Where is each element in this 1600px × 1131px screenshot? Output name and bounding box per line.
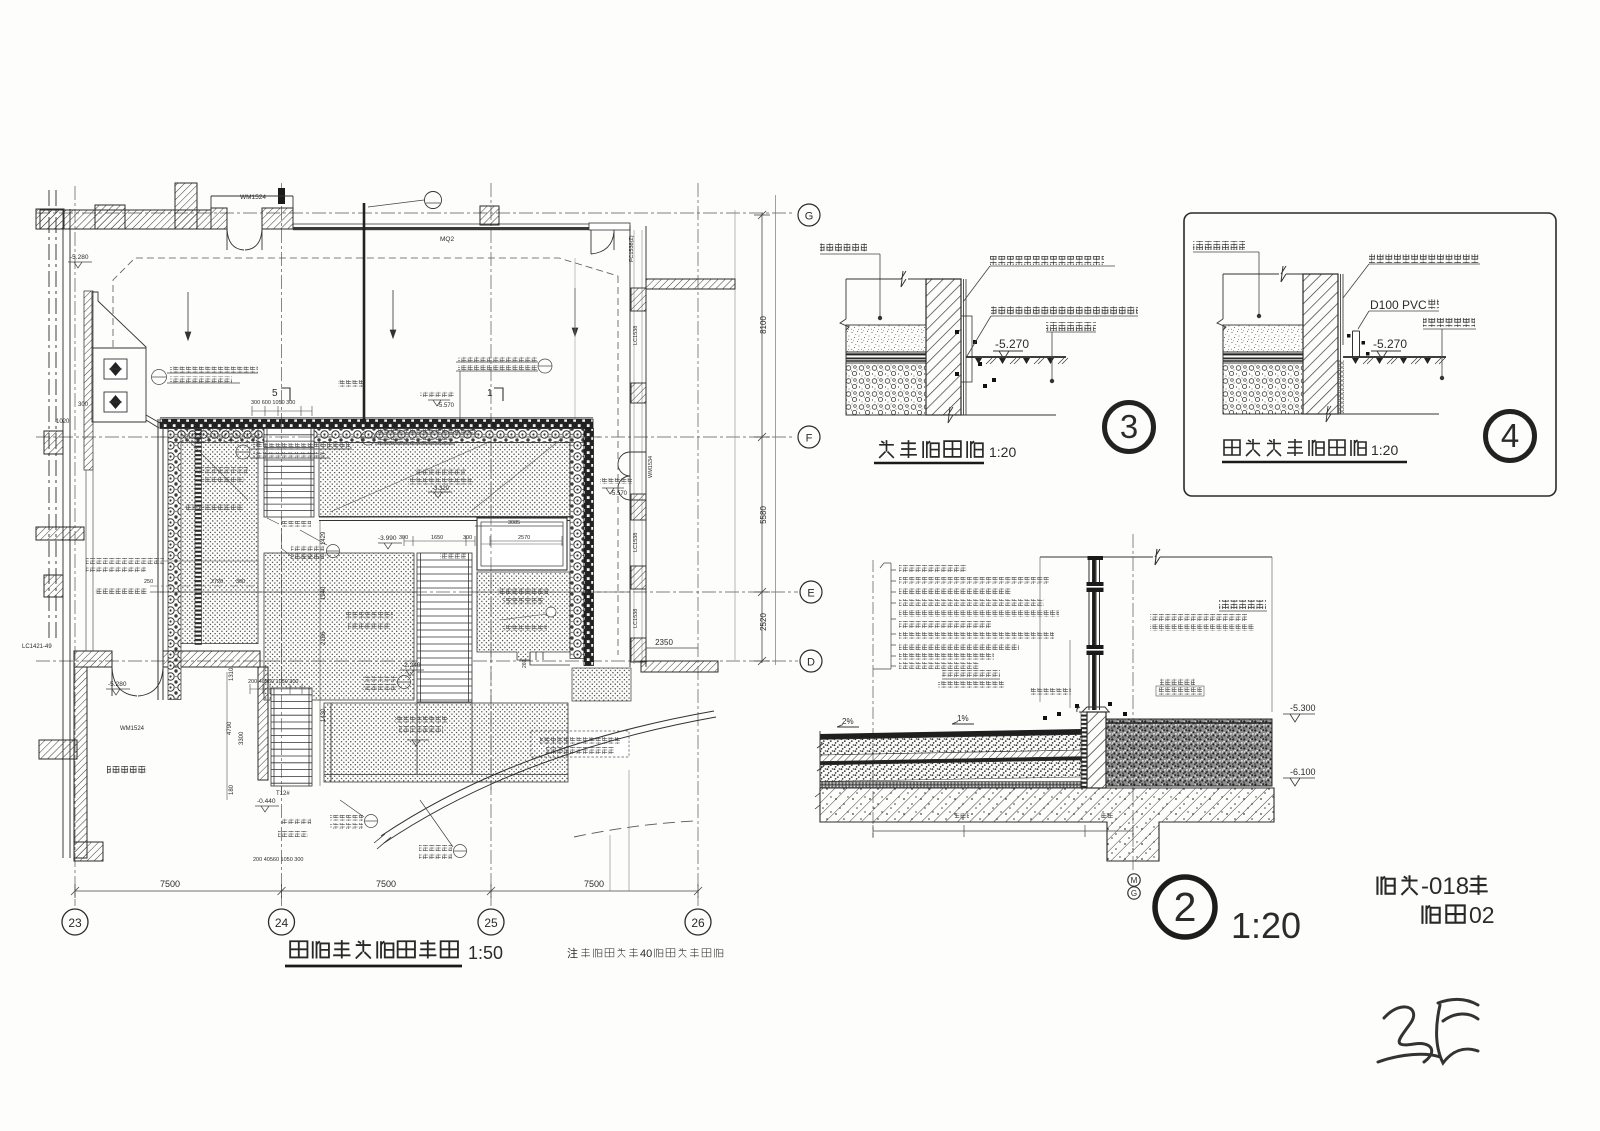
svg-text:1:50: 1:50: [468, 943, 503, 963]
svg-text:D: D: [807, 657, 815, 669]
svg-text:LC1538: LC1538: [633, 533, 639, 552]
svg-text:4: 4: [1501, 417, 1519, 454]
svg-text:WM1524: WM1524: [120, 726, 145, 732]
svg-text:2570: 2570: [518, 535, 530, 541]
svg-text:3: 3: [1120, 408, 1138, 445]
svg-text:-5.570: -5.570: [437, 403, 455, 409]
svg-text:FC1538(Z): FC1538(Z): [629, 235, 635, 262]
svg-text:7500: 7500: [584, 879, 604, 889]
svg-text:-5.570: -5.570: [610, 491, 628, 497]
svg-text:1%: 1%: [957, 714, 969, 723]
svg-text:M: M: [1131, 876, 1138, 885]
svg-text:-5.280: -5.280: [70, 254, 89, 261]
svg-text:LC1421-49: LC1421-49: [22, 644, 52, 650]
svg-text:1:20: 1:20: [989, 444, 1016, 460]
svg-text:5580: 5580: [759, 506, 768, 524]
svg-text:2720: 2720: [211, 579, 223, 585]
svg-text:300: 300: [463, 535, 472, 541]
svg-text:1940: 1940: [321, 586, 327, 600]
svg-text:1: 1: [487, 388, 493, 399]
svg-text:-5.270: -5.270: [1373, 337, 1407, 351]
svg-text:7500: 7500: [160, 879, 180, 889]
svg-text:T12#: T12#: [276, 791, 290, 797]
svg-text:7500: 7500: [376, 879, 396, 889]
svg-text:250: 250: [144, 579, 153, 585]
svg-text:1430: 1430: [321, 708, 327, 722]
svg-text:23: 23: [68, 916, 82, 930]
svg-text:WM1534: WM1534: [648, 456, 654, 478]
svg-text:8100: 8100: [759, 316, 768, 334]
svg-text:300: 300: [399, 535, 408, 541]
svg-text:E: E: [807, 588, 814, 600]
svg-text:1:20: 1:20: [1371, 442, 1398, 458]
svg-text:-0.440: -0.440: [257, 798, 276, 805]
svg-text:3085: 3085: [508, 520, 520, 526]
svg-text:-5.280: -5.280: [108, 681, 127, 688]
svg-text:2350: 2350: [655, 638, 673, 647]
svg-text:2%: 2%: [842, 717, 854, 726]
svg-text:-2.240: -2.240: [402, 662, 421, 669]
svg-text:4790: 4790: [227, 721, 233, 735]
svg-text:-6.100: -6.100: [1290, 767, 1316, 777]
svg-text:-3.320: -3.320: [432, 486, 450, 492]
svg-text:1650: 1650: [431, 535, 443, 541]
svg-text:180: 180: [229, 784, 235, 795]
svg-text:1020: 1020: [56, 419, 70, 425]
svg-text:2: 2: [1174, 884, 1197, 930]
svg-text:-5.300: -5.300: [1290, 703, 1316, 713]
svg-text:2520: 2520: [759, 613, 768, 631]
svg-text:5: 5: [272, 388, 278, 399]
svg-text:1:20: 1:20: [1231, 905, 1301, 946]
svg-text:25: 25: [484, 916, 498, 930]
svg-text:LC1538: LC1538: [633, 609, 639, 628]
svg-text:2186: 2186: [321, 631, 327, 645]
svg-text:WM1524: WM1524: [240, 194, 266, 201]
svg-text:G: G: [805, 211, 814, 223]
svg-text:MQ2: MQ2: [440, 236, 454, 243]
svg-text:-3.990: -3.990: [378, 535, 397, 542]
svg-text:26: 26: [691, 916, 705, 930]
svg-text:1310: 1310: [229, 667, 235, 681]
svg-text:200 40560 1050 300: 200 40560 1050 300: [253, 857, 303, 863]
svg-text:-5.270: -5.270: [995, 337, 1029, 351]
svg-text:40: 40: [640, 948, 652, 960]
svg-text:02: 02: [1469, 902, 1495, 928]
svg-text:1429: 1429: [321, 531, 327, 545]
svg-text:24: 24: [275, 916, 289, 930]
svg-text:D100 PVC: D100 PVC: [1370, 298, 1427, 312]
svg-text:200 40560 1050 300: 200 40560 1050 300: [248, 679, 298, 685]
svg-text:3300: 3300: [239, 731, 245, 745]
svg-text:300: 300: [236, 579, 245, 585]
svg-text:注: 注: [567, 946, 578, 960]
svg-text:LC1538: LC1538: [633, 326, 639, 345]
svg-text:F: F: [806, 433, 813, 445]
svg-text:300: 300: [78, 402, 89, 408]
svg-text:-018: -018: [1421, 873, 1469, 900]
svg-text:260: 260: [522, 659, 528, 668]
svg-text:300 600 1050 300: 300 600 1050 300: [251, 400, 295, 406]
svg-text:G: G: [1131, 889, 1137, 898]
